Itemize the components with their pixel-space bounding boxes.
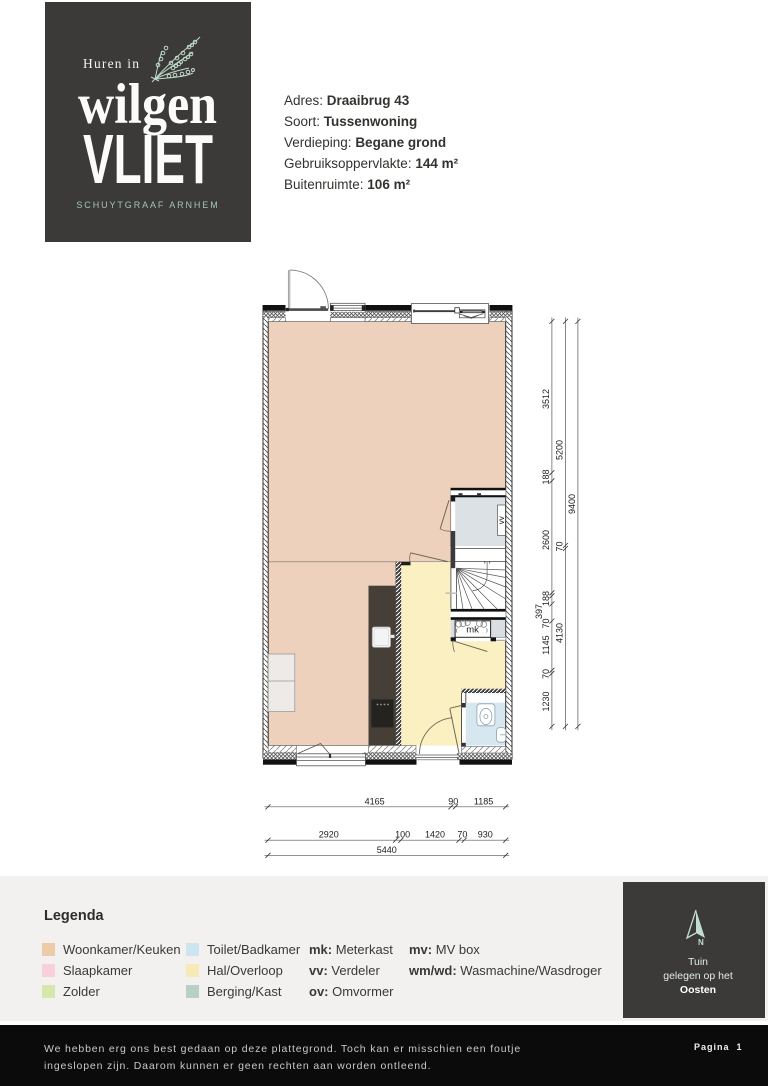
svg-text:9400: 9400 bbox=[567, 494, 577, 514]
svg-text:930: 930 bbox=[478, 830, 493, 840]
svg-text:100: 100 bbox=[395, 830, 410, 840]
svg-text:mk: mk bbox=[466, 625, 479, 636]
svg-text:188: 188 bbox=[541, 591, 551, 606]
svg-text:70: 70 bbox=[457, 830, 467, 840]
svg-text:5200: 5200 bbox=[555, 440, 565, 460]
svg-text:1145: 1145 bbox=[541, 635, 551, 654]
svg-text:Huren in: Huren in bbox=[83, 56, 140, 71]
svg-text:397: 397 bbox=[534, 604, 544, 619]
svg-text:VLIET: VLIET bbox=[83, 121, 213, 198]
svg-text:vv: vv bbox=[497, 516, 506, 524]
svg-text:188: 188 bbox=[541, 469, 551, 484]
svg-text:2920: 2920 bbox=[319, 830, 339, 840]
svg-text:SCHUYTGRAAF ARNHEM: SCHUYTGRAAF ARNHEM bbox=[76, 200, 219, 210]
svg-text:1185: 1185 bbox=[474, 796, 493, 806]
svg-text:1420: 1420 bbox=[425, 830, 445, 840]
svg-text:5440: 5440 bbox=[377, 845, 397, 855]
svg-text:1230: 1230 bbox=[541, 691, 551, 711]
svg-text:70: 70 bbox=[541, 618, 551, 628]
svg-text:90: 90 bbox=[448, 796, 458, 806]
svg-text:4165: 4165 bbox=[365, 796, 385, 806]
svg-text:70: 70 bbox=[555, 541, 565, 551]
svg-text:2600: 2600 bbox=[541, 530, 551, 550]
svg-text:4130: 4130 bbox=[555, 623, 565, 643]
svg-text:N: N bbox=[698, 938, 704, 947]
svg-text:3512: 3512 bbox=[541, 389, 551, 409]
svg-text:70: 70 bbox=[541, 669, 551, 679]
